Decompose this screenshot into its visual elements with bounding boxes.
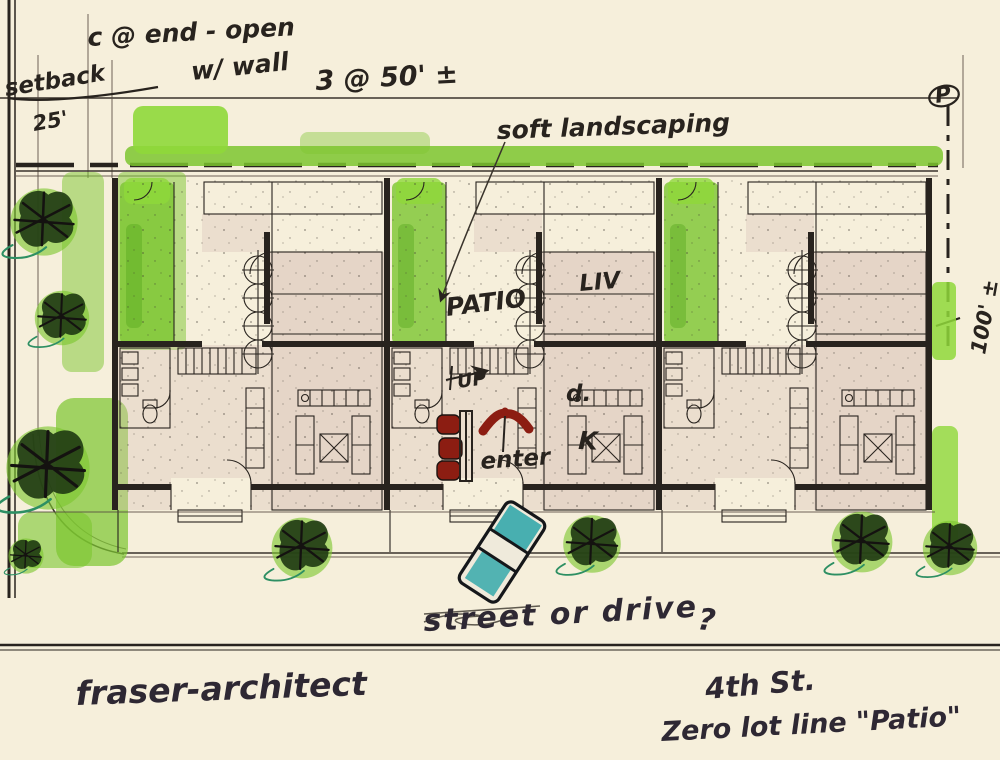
red-patio-furniture: [437, 411, 472, 481]
question-mark: ?: [696, 602, 717, 639]
label-liv: LIV: [578, 267, 623, 297]
label-dining: d.: [566, 381, 591, 407]
label-kitchen: K: [578, 426, 600, 456]
unit-module-3: [656, 178, 928, 552]
site-plan-sketch: c @ end - open setback 25' w/ wall 3 @ 5…: [0, 0, 1000, 760]
label-enter: enter: [480, 444, 553, 475]
label-up: UP: [456, 367, 488, 393]
sketch-canvas: c @ end - open setback 25' w/ wall 3 @ 5…: [0, 0, 1000, 760]
end-party-wall: [926, 178, 932, 510]
unit-module-2: [384, 178, 656, 552]
label-property-pin: P: [933, 82, 952, 109]
unit-module-1: [112, 178, 384, 552]
